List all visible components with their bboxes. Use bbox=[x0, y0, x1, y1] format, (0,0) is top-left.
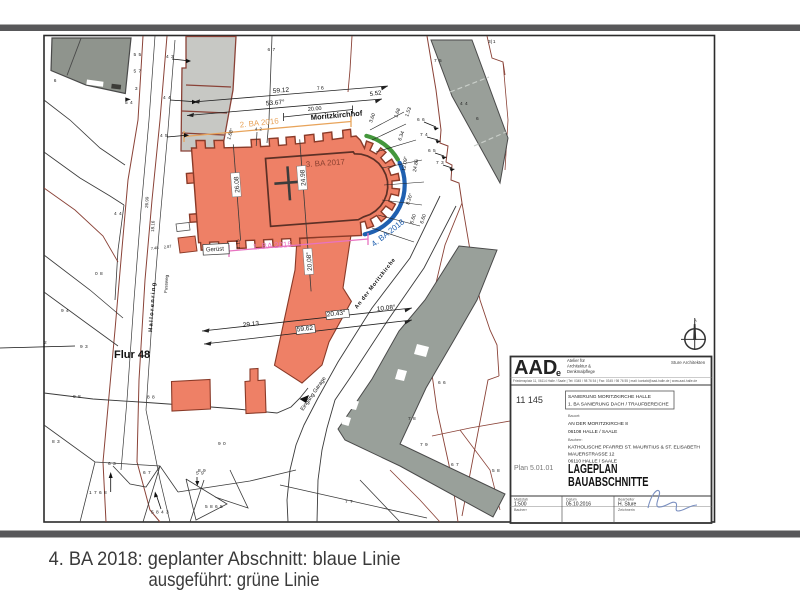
svg-text:Gerüst: Gerüst bbox=[206, 247, 225, 254]
svg-text:4. BA 2018: geplanter Abschnit: 4. BA 2018: geplanter Abschnitt: blaue L… bbox=[49, 548, 401, 570]
svg-text:KATHOLISCHE PFARREI ST. MAURIT: KATHOLISCHE PFARREI ST. MAURITIUS & ST. … bbox=[568, 445, 700, 451]
svg-text:H. Sture: H. Sture bbox=[618, 502, 637, 508]
svg-text:Zeichnerin: Zeichnerin bbox=[618, 508, 635, 512]
svg-text:6 7: 6 7 bbox=[268, 47, 276, 53]
svg-text:Bauherr:: Bauherr: bbox=[568, 438, 583, 442]
svg-text:4 4: 4 4 bbox=[460, 101, 468, 107]
svg-text:MAUERSTRASSE 12: MAUERSTRASSE 12 bbox=[568, 452, 615, 458]
svg-text:26.99: 26.99 bbox=[144, 196, 150, 208]
svg-text:4 5: 4 5 bbox=[160, 133, 168, 139]
svg-text:9 4: 9 4 bbox=[61, 308, 69, 314]
svg-text:6 3: 6 3 bbox=[108, 461, 116, 467]
svg-text:18.16: 18.16 bbox=[150, 220, 156, 232]
svg-text:BAUABSCHNITTE: BAUABSCHNITTE bbox=[568, 475, 649, 489]
svg-text:SANIERUNG MORITZKIRCHE HALLE: SANIERUNG MORITZKIRCHE HALLE bbox=[568, 394, 651, 400]
svg-text:4 4: 4 4 bbox=[114, 211, 122, 217]
svg-text:24.98: 24.98 bbox=[299, 169, 307, 186]
svg-text:6 7: 6 7 bbox=[143, 470, 151, 476]
svg-text:Plan 5.01.01: Plan 5.01.01 bbox=[514, 465, 553, 472]
svg-text:7 8: 7 8 bbox=[408, 416, 416, 422]
svg-text:8 3: 8 3 bbox=[52, 439, 60, 445]
svg-text:4 2: 4 2 bbox=[255, 127, 262, 132]
svg-text:26.08: 26.08 bbox=[233, 176, 241, 193]
svg-text:LAGEPLAN: LAGEPLAN bbox=[568, 462, 618, 476]
svg-text:9 0: 9 0 bbox=[218, 441, 226, 447]
svg-text:9 8: 9 8 bbox=[73, 394, 81, 400]
svg-text:Bauort:: Bauort: bbox=[568, 414, 580, 418]
svg-text:8 9: 8 9 bbox=[198, 468, 206, 474]
svg-text:7 3: 7 3 bbox=[436, 160, 444, 166]
svg-text:Bauherr: Bauherr bbox=[514, 508, 528, 512]
svg-text:0 8: 0 8 bbox=[95, 271, 103, 277]
svg-text:6 5: 6 5 bbox=[428, 148, 436, 154]
svg-text:Flur 48: Flur 48 bbox=[114, 349, 150, 361]
svg-text:9 3: 9 3 bbox=[80, 344, 88, 350]
svg-text:59.12: 59.12 bbox=[273, 87, 290, 95]
svg-text:6: 6 bbox=[476, 116, 479, 122]
svg-text:8 8: 8 8 bbox=[147, 395, 155, 401]
svg-text:7 7: 7 7 bbox=[345, 499, 353, 505]
svg-text:6 6: 6 6 bbox=[438, 380, 446, 386]
svg-text:4 4: 4 4 bbox=[163, 95, 171, 101]
svg-text:5 8: 5 8 bbox=[492, 468, 500, 474]
svg-text:7 9: 7 9 bbox=[420, 442, 428, 448]
svg-text:6: 6 bbox=[54, 78, 57, 84]
svg-text:05.10.2016: 05.10.2016 bbox=[566, 502, 591, 508]
svg-text:1:500: 1:500 bbox=[514, 502, 527, 508]
svg-text:AAD: AAD bbox=[514, 357, 557, 379]
svg-text:06108 HALLE / SAALE: 06108 HALLE / SAALE bbox=[568, 429, 617, 435]
svg-text:7 6: 7 6 bbox=[317, 85, 325, 92]
svg-text:1. BA SANIERUNG DACH / TRAUFBE: 1. BA SANIERUNG DACH / TRAUFBEREICHE bbox=[568, 402, 669, 408]
svg-text:3: 3 bbox=[135, 86, 138, 92]
svg-text:5 5: 5 5 bbox=[134, 52, 142, 58]
svg-text:11 145: 11 145 bbox=[516, 395, 543, 405]
svg-text:6 6: 6 6 bbox=[417, 117, 425, 123]
svg-text:AN DER MORITZKIRCHE 8: AN DER MORITZKIRCHE 8 bbox=[568, 421, 628, 427]
svg-text:7 4: 7 4 bbox=[420, 132, 428, 138]
svg-text:20.00: 20.00 bbox=[308, 106, 322, 113]
svg-text:1 7 6 8: 1 7 6 8 bbox=[89, 490, 107, 496]
svg-text:Architektur &: Architektur & bbox=[567, 364, 591, 369]
svg-text:5 7: 5 7 bbox=[134, 69, 142, 75]
svg-text:Friedensplatz 11, 06114 Halle: Friedensplatz 11, 06114 Halle / Saale | … bbox=[513, 379, 697, 383]
svg-text:7 5: 7 5 bbox=[434, 58, 442, 64]
svg-text:Denkmalpflege: Denkmalpflege bbox=[567, 369, 596, 374]
svg-text:5 8 6 5: 5 8 6 5 bbox=[205, 504, 223, 510]
svg-text:20.08°: 20.08° bbox=[305, 251, 314, 271]
svg-text:1.15: 1.15 bbox=[235, 239, 242, 249]
svg-text:5 8 4 3: 5 8 4 3 bbox=[151, 510, 169, 516]
svg-text:ausgeführt: grüne Linie: ausgeführt: grüne Linie bbox=[149, 569, 320, 591]
svg-text:2: 2 bbox=[44, 340, 47, 346]
svg-text:Atelier für: Atelier für bbox=[567, 358, 586, 363]
svg-text:e: e bbox=[556, 368, 561, 378]
svg-text:53.67°: 53.67° bbox=[265, 98, 285, 108]
svg-text:Sture Architekten: Sture Architekten bbox=[671, 360, 706, 365]
svg-text:6 7: 6 7 bbox=[451, 462, 459, 468]
svg-text:3|1: 3|1 bbox=[488, 39, 496, 45]
